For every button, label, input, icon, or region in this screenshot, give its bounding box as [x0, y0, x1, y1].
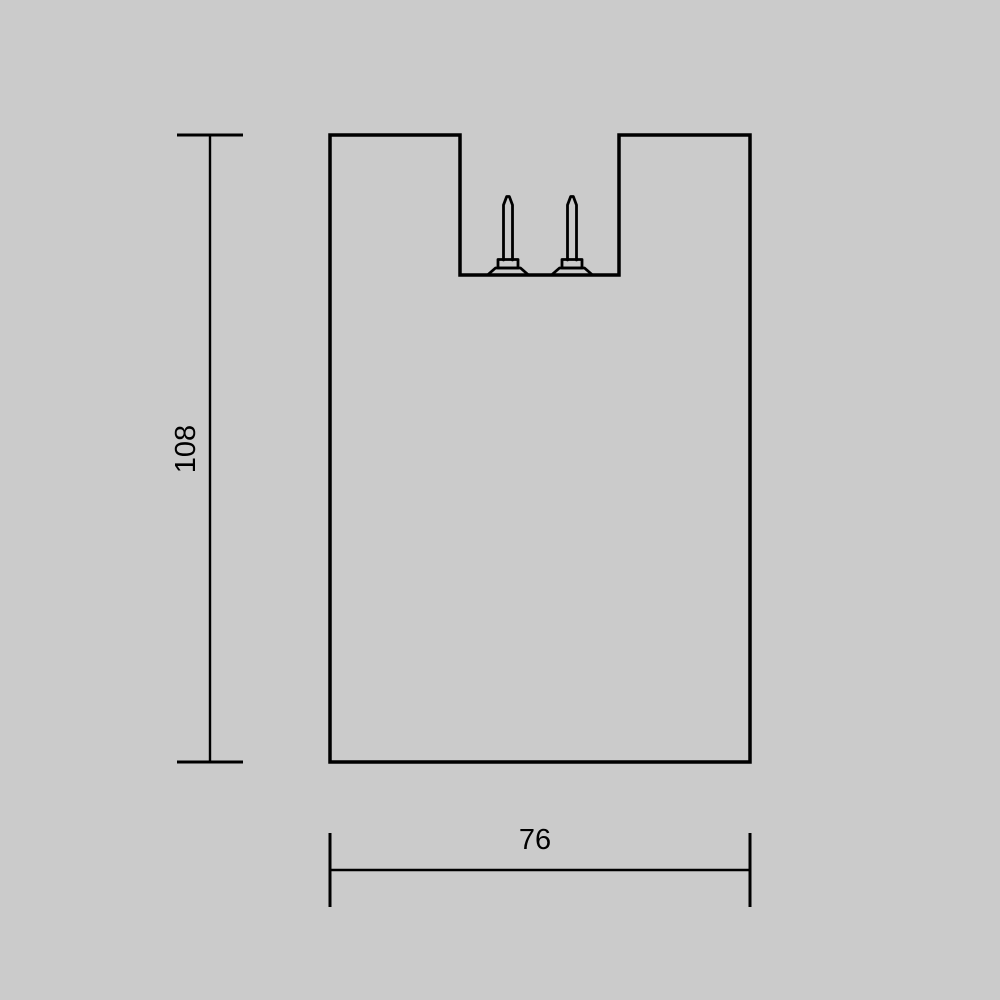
technical-drawing-canvas: 108 76 [0, 0, 1000, 1000]
pin-base-left [488, 268, 529, 275]
pin-stem-left [504, 197, 513, 261]
profile-outline [330, 135, 750, 762]
pin-stem-right [568, 197, 577, 261]
dimension-drawing: 108 76 [0, 0, 1000, 1000]
width-dimension-label: 76 [519, 824, 551, 856]
height-dimension: 108 [170, 135, 243, 762]
width-dimension: 76 [330, 824, 750, 907]
contact-pin-right [552, 197, 593, 276]
contact-pin-left [488, 197, 529, 276]
height-dimension-label: 108 [170, 425, 202, 473]
pin-base-right [552, 268, 593, 275]
